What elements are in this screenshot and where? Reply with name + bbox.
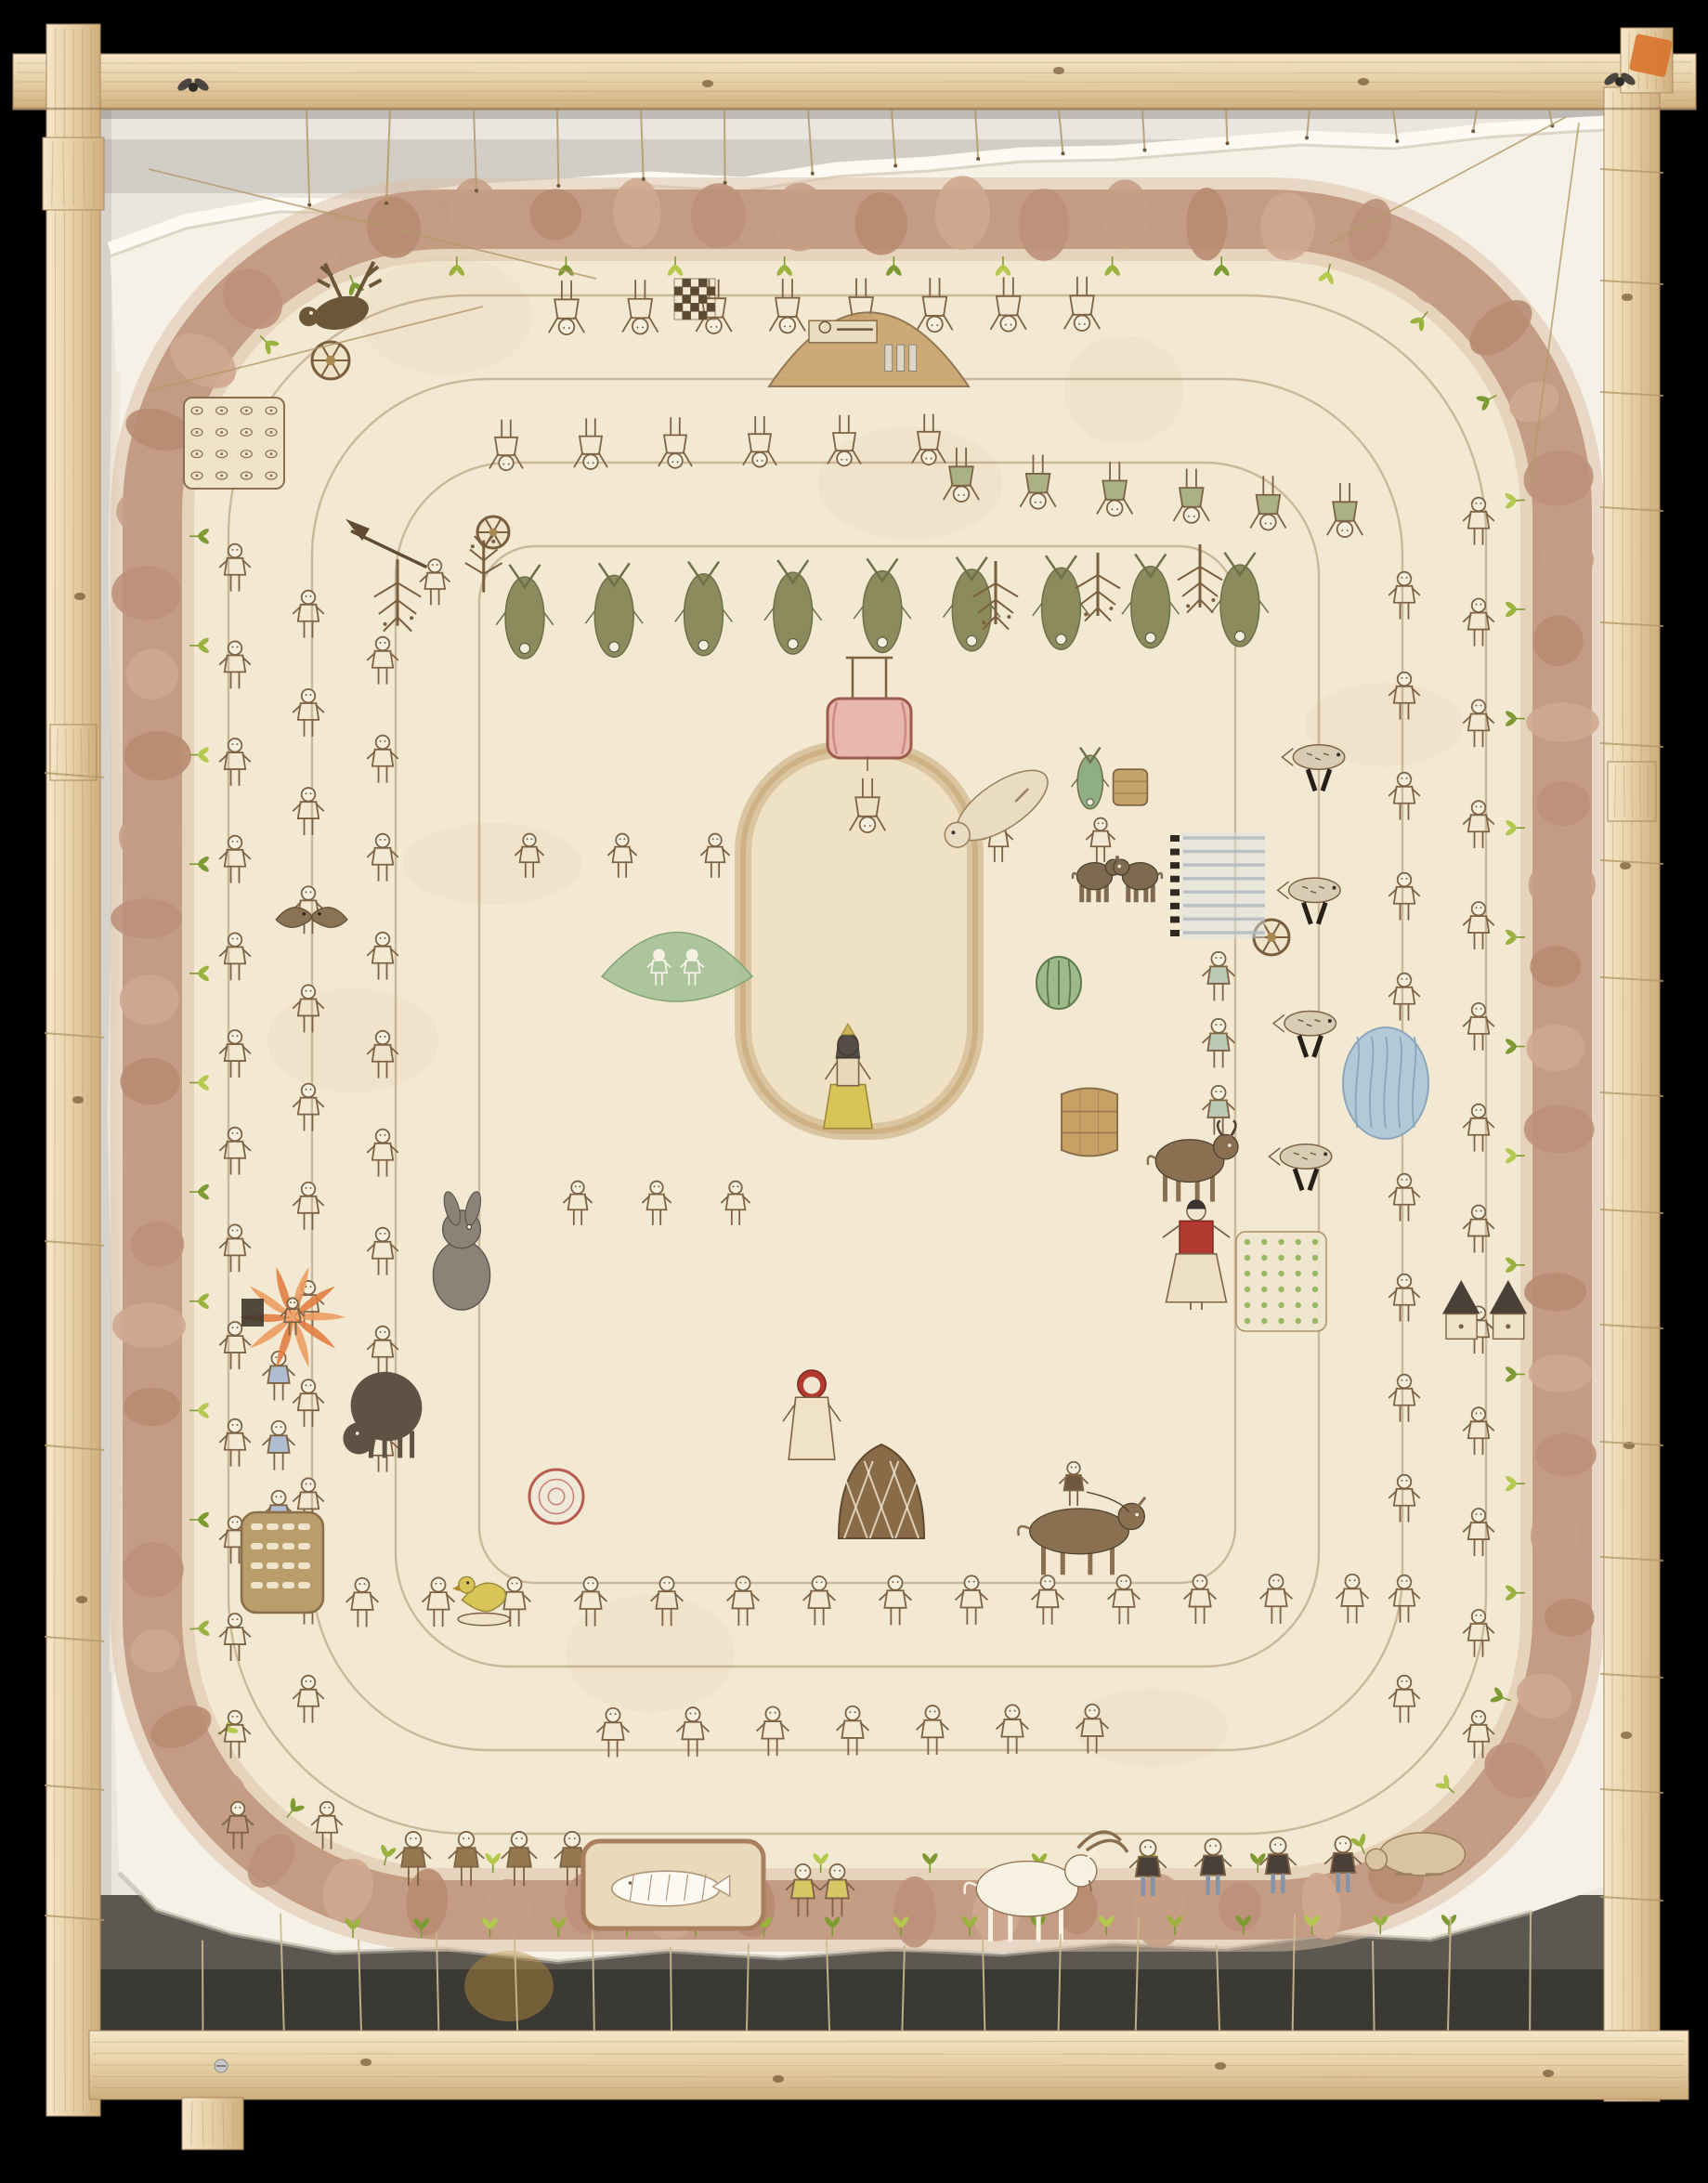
wood-knot — [74, 593, 85, 600]
scallop-blob — [123, 1468, 171, 1509]
scallop-blob — [691, 183, 747, 248]
scallop-blob — [1101, 179, 1150, 249]
scallop-blob — [123, 1136, 173, 1190]
wood-knot — [1215, 2062, 1226, 2070]
scallop-blob — [1526, 1025, 1584, 1072]
wood-knot — [1622, 294, 1633, 301]
wood-knot — [1543, 2070, 1554, 2077]
wood-knot — [1358, 78, 1369, 85]
scallop-blob — [1541, 539, 1594, 580]
motif-whale-skeleton — [583, 1841, 763, 1928]
wood-knot — [773, 2075, 784, 2083]
frame-bar-left-post — [46, 24, 100, 2116]
wood-knot — [72, 1096, 84, 1104]
scallop-blob — [1526, 702, 1598, 741]
wood-knot — [76, 1596, 87, 1603]
framed-folk-painting-photo — [0, 0, 1708, 2183]
orange-tape-marker — [1629, 33, 1673, 77]
scallop-blob — [1537, 781, 1591, 826]
lacing-string — [724, 110, 725, 183]
scallop-blob — [1530, 946, 1581, 987]
frame-bar-left-post-cap — [43, 137, 104, 210]
scallop-blob — [893, 1876, 936, 1948]
scallop-blob — [613, 178, 660, 247]
wood-knot — [1053, 67, 1064, 74]
wood-knot — [360, 2059, 372, 2066]
wood-knot — [1621, 1732, 1632, 1739]
scallop-blob — [120, 974, 179, 1025]
scallop-blob — [855, 192, 907, 255]
scallop-blob — [125, 649, 177, 699]
scallop-blob — [116, 487, 181, 536]
scallop-blob — [1019, 189, 1070, 261]
wood-knot — [702, 80, 713, 87]
scallop-blob — [450, 178, 499, 248]
hide-painting — [111, 176, 1599, 1947]
scallop-blob — [1132, 1874, 1186, 1948]
wood-knot — [1620, 862, 1631, 869]
scallop-blob — [1524, 1273, 1586, 1311]
scallop-blob — [124, 731, 191, 780]
motif-woven-basket — [241, 1512, 323, 1613]
frame-bar-bottom-rail — [89, 2031, 1688, 2099]
lacing-string — [557, 110, 558, 186]
scallop-blob — [124, 1388, 180, 1426]
screw-icon — [215, 2059, 228, 2072]
motif-spoked-wheel-2 — [477, 516, 509, 548]
scallop-blob — [1524, 1105, 1595, 1154]
scallop-blob — [1533, 616, 1584, 667]
frame-bar-top-rail — [13, 54, 1696, 110]
scallop-blob — [935, 176, 990, 249]
scallop-blob — [120, 1058, 179, 1105]
scallop-blob — [124, 1542, 184, 1597]
scallop-blob — [1537, 1187, 1591, 1234]
scallop-blob — [111, 566, 181, 620]
scallop-blob — [1545, 1599, 1595, 1637]
motif-watermelon — [1037, 957, 1081, 1009]
scallop-blob — [1535, 1433, 1597, 1476]
painting-canvas — [0, 0, 1708, 2183]
scallop-blob — [111, 898, 182, 938]
motif-woven-rug — [184, 398, 284, 489]
scallop-blob — [112, 1302, 186, 1348]
scallop-blob — [1531, 1511, 1581, 1561]
scallop-blob — [1529, 858, 1596, 911]
motif-blue-wavy-ball — [1343, 1027, 1428, 1139]
scallop-blob — [773, 183, 827, 252]
motif-loom-fence — [1170, 832, 1265, 938]
frame-bar-bottom-foot — [182, 2098, 243, 2150]
motif-sprout-field — [1236, 1232, 1326, 1331]
motif-barrel — [1062, 1089, 1117, 1157]
cloth-stain — [464, 1951, 554, 2021]
scallop-blob — [119, 811, 181, 863]
scallop-blob — [131, 1222, 185, 1267]
scallop-blob — [1529, 1354, 1592, 1392]
scallop-blob — [530, 189, 582, 240]
frame-bar-right-post-notch — [1608, 762, 1656, 821]
frame-bar-left-post-notch — [50, 725, 97, 780]
scallop-blob — [1186, 188, 1227, 261]
motif-red-disc — [529, 1470, 583, 1523]
scallop-blob — [485, 1879, 530, 1940]
